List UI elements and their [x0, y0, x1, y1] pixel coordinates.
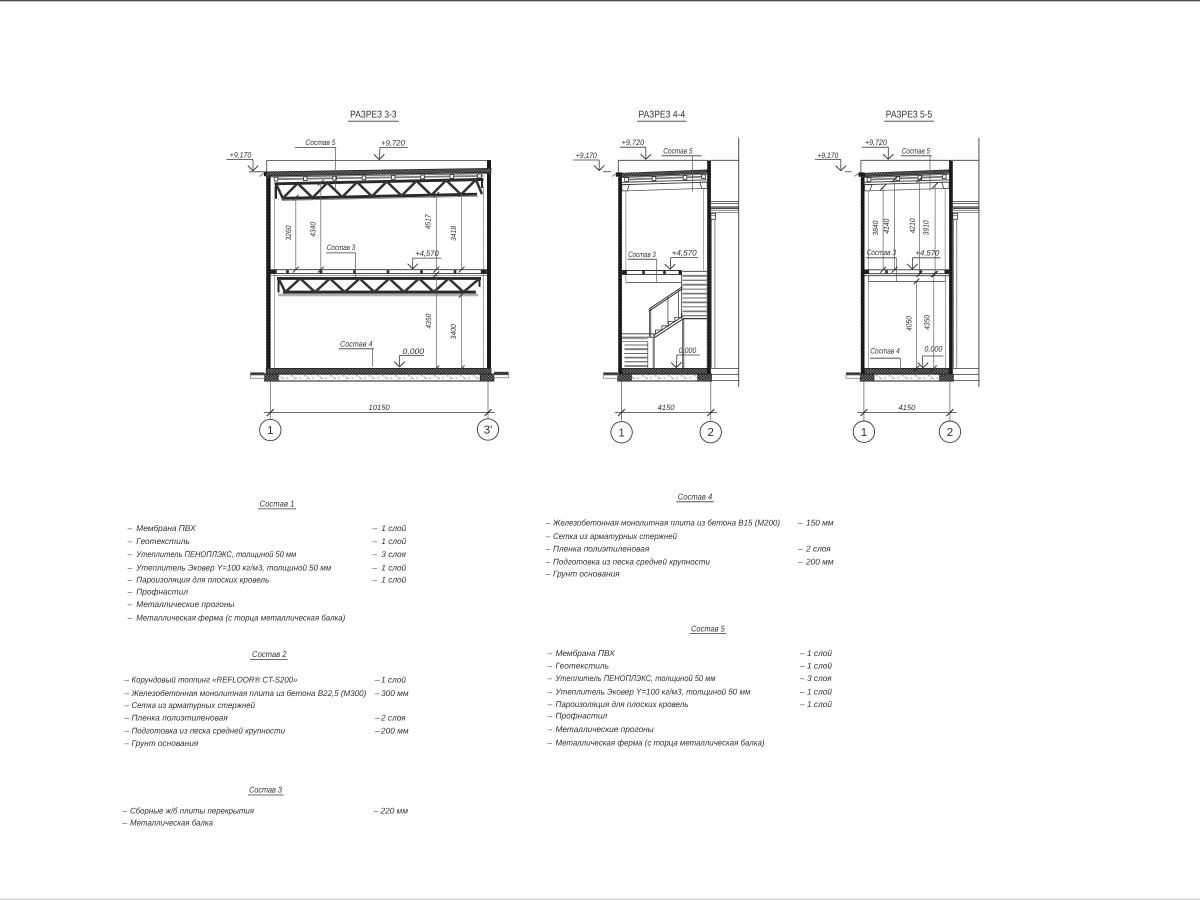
svg-text:2: 2	[707, 427, 713, 439]
svg-text:1 слой: 1 слой	[807, 686, 832, 696]
svg-text:0,000: 0,000	[403, 347, 425, 356]
svg-text:–: –	[799, 699, 805, 709]
svg-text:Железобетонная монолитная пли: Железобетонная монолитная плита из бетон…	[552, 518, 780, 528]
svg-text:–: –	[547, 686, 553, 696]
svg-text:Металлические прогоны: Металлические прогоны	[556, 724, 654, 734]
svg-text:Пароизоляция для плоских крове: Пароизоляция для плоских кровель	[556, 699, 689, 709]
svg-text:1: 1	[861, 427, 867, 439]
svg-text:Металлическая ферма (с торца м: Металлическая ферма (с торца металлическ…	[556, 737, 765, 747]
svg-text:–: –	[799, 661, 805, 671]
svg-text:Металлические прогоны: Металлические прогоны	[136, 599, 234, 609]
svg-text:–: –	[122, 805, 128, 815]
svg-text:–: –	[547, 699, 553, 709]
svg-text:300 мм: 300 мм	[381, 688, 409, 698]
svg-text:–: –	[547, 737, 553, 747]
svg-text:–: –	[124, 675, 130, 685]
svg-text:Утеплитель ПЕНОПЛЭКС, толщиной: Утеплитель ПЕНОПЛЭКС, толщиной 50 мм	[555, 673, 716, 683]
svg-text:Сетка из арматурных стержней: Сетка из арматурных стержней	[553, 531, 677, 541]
svg-text:–: –	[797, 543, 803, 553]
svg-text:Пароизоляция для плоских крове: Пароизоляция для плоских кровель	[136, 575, 269, 585]
svg-text:2 слоя: 2 слоя	[805, 543, 831, 553]
svg-text:Утеплитель Эковер Y=100 кг/м3,: Утеплитель Эковер Y=100 кг/м3, толщиной …	[555, 686, 751, 696]
svg-text:3': 3'	[484, 425, 493, 437]
svg-text:–: –	[797, 518, 803, 528]
svg-text:Утеплитель Эковер Y=100 кг/м3,: Утеплитель Эковер Y=100 кг/м3, толщиной …	[135, 562, 331, 572]
svg-text:–: –	[372, 575, 378, 585]
svg-text:1 слой: 1 слой	[381, 536, 406, 546]
svg-text:Подготовка из песка средней кр: Подготовка из песка средней крупности	[132, 726, 286, 736]
svg-text:–: –	[374, 688, 380, 698]
svg-text:Состав 3: Состав 3	[867, 248, 897, 257]
svg-text:2: 2	[947, 427, 953, 439]
svg-text:–: –	[127, 536, 133, 546]
svg-text:+9,720: +9,720	[622, 138, 645, 147]
svg-text:–: –	[374, 675, 380, 685]
svg-text:–: –	[127, 523, 133, 533]
svg-text:–: –	[545, 568, 551, 578]
svg-text:200 мм: 200 мм	[380, 726, 409, 736]
svg-text:1 слой: 1 слой	[381, 675, 406, 685]
svg-text:4517: 4517	[424, 214, 433, 230]
svg-text:10150: 10150	[369, 403, 391, 412]
svg-text:Состав 2: Состав 2	[252, 649, 287, 659]
svg-text:–: –	[127, 612, 133, 622]
svg-text:–: –	[122, 818, 128, 828]
svg-text:РАЗРЕЗ 3-3: РАЗРЕЗ 3-3	[350, 110, 397, 121]
svg-text:–: –	[127, 587, 133, 597]
svg-text:220 мм: 220 мм	[380, 805, 409, 815]
svg-text:–: –	[547, 673, 553, 683]
svg-text:Состав 5: Состав 5	[691, 623, 725, 633]
svg-text:Мембрана ПВХ: Мембрана ПВХ	[556, 648, 616, 658]
svg-text:Состав 4: Состав 4	[340, 339, 373, 348]
svg-text:–: –	[372, 536, 378, 546]
svg-text:3910: 3910	[922, 220, 931, 236]
svg-text:Грунт основания: Грунт основания	[553, 568, 620, 578]
svg-text:–: –	[545, 531, 551, 541]
svg-text:1: 1	[618, 427, 624, 439]
svg-text:Состав 4: Состав 4	[678, 492, 713, 502]
svg-text:–: –	[124, 688, 130, 698]
svg-text:Состав 4: Состав 4	[870, 347, 900, 356]
svg-text:–: –	[372, 523, 378, 533]
svg-text:4150: 4150	[658, 403, 676, 412]
svg-text:4350: 4350	[922, 314, 931, 330]
svg-text:1 слой: 1 слой	[807, 699, 832, 709]
svg-text:0,000: 0,000	[679, 346, 697, 355]
svg-text:4140: 4140	[882, 218, 891, 234]
svg-text:–: –	[374, 713, 380, 723]
svg-text:1 слой: 1 слой	[381, 575, 406, 585]
svg-text:–: –	[547, 724, 553, 734]
svg-text:2 слоя: 2 слоя	[380, 713, 406, 723]
svg-text:3400: 3400	[449, 324, 458, 340]
svg-text:Подготовка из песка средней кр: Подготовка из песка средней крупности	[553, 556, 710, 566]
svg-text:–: –	[373, 805, 379, 815]
svg-text:–: –	[545, 556, 551, 566]
svg-text:–: –	[372, 549, 378, 559]
svg-text:+9,170: +9,170	[576, 151, 598, 160]
svg-text:+9,170: +9,170	[818, 151, 839, 160]
svg-text:РАЗРЕЗ 5-5: РАЗРЕЗ 5-5	[886, 110, 933, 121]
svg-text:3840: 3840	[871, 220, 880, 236]
svg-text:Состав 3: Состав 3	[327, 243, 356, 252]
svg-text:Пленка полиэтиленовая: Пленка полиэтиленовая	[132, 713, 229, 723]
svg-text:Железобетонная монолитная пли: Железобетонная монолитная плита из бетон…	[131, 688, 367, 698]
svg-text:Грунт основания: Грунт основания	[132, 738, 199, 748]
svg-text:+9,720: +9,720	[865, 138, 887, 147]
svg-text:–: –	[124, 700, 130, 710]
svg-text:–: –	[124, 738, 130, 748]
svg-text:+4,570: +4,570	[415, 249, 439, 258]
svg-text:Состав 5: Состав 5	[305, 138, 336, 147]
svg-text:–: –	[797, 556, 803, 566]
svg-text:4350: 4350	[424, 313, 433, 329]
svg-text:4150: 4150	[898, 403, 916, 412]
svg-text:РАЗРЕЗ 4-4: РАЗРЕЗ 4-4	[639, 110, 686, 121]
svg-text:–: –	[547, 711, 553, 721]
svg-text:Сборные ж/б плиты перекрытия: Сборные ж/б плиты перекрытия	[130, 805, 255, 815]
svg-text:3260: 3260	[284, 225, 293, 241]
svg-text:–: –	[372, 562, 378, 572]
svg-text:–: –	[374, 726, 380, 736]
svg-text:Состав 5: Состав 5	[902, 147, 931, 156]
svg-text:Мембрана ПВХ: Мембрана ПВХ	[136, 523, 196, 533]
svg-text:–: –	[799, 648, 805, 658]
svg-text:–: –	[799, 673, 805, 683]
svg-text:+9,720: +9,720	[381, 138, 405, 147]
svg-text:–: –	[545, 543, 551, 553]
svg-text:–: –	[127, 549, 133, 559]
svg-text:1: 1	[267, 425, 273, 437]
svg-text:Профнастил: Профнастил	[556, 711, 608, 721]
svg-text:4340: 4340	[309, 221, 318, 237]
svg-text:–: –	[124, 726, 130, 736]
svg-text:4210: 4210	[908, 218, 917, 234]
svg-text:1 слой: 1 слой	[807, 648, 832, 658]
svg-text:1 слой: 1 слой	[381, 523, 406, 533]
svg-text:Состав 3: Состав 3	[628, 250, 656, 259]
svg-text:Состав 3: Состав 3	[249, 785, 282, 795]
svg-text:–: –	[799, 686, 805, 696]
svg-text:+4,570: +4,570	[672, 248, 698, 257]
svg-text:–: –	[545, 518, 551, 528]
svg-text:–: –	[547, 648, 553, 658]
svg-text:1 слой: 1 слой	[381, 562, 406, 572]
svg-text:Металлическая балка: Металлическая балка	[130, 818, 213, 828]
svg-text:3 слоя: 3 слоя	[381, 549, 406, 559]
svg-text:Состав 5: Состав 5	[663, 147, 693, 156]
svg-text:Геотекстиль: Геотекстиль	[136, 536, 189, 546]
svg-text:–: –	[127, 599, 133, 609]
svg-text:Профнастил: Профнастил	[136, 587, 188, 597]
svg-text:Утеплитель ПЕНОПЛЭКС, толщиной: Утеплитель ПЕНОПЛЭКС, толщиной 50 мм	[135, 549, 296, 559]
svg-text:150 мм: 150 мм	[806, 518, 834, 528]
svg-text:+9,170: +9,170	[230, 150, 252, 159]
svg-text:Сетка из арматурных стержней: Сетка из арматурных стержней	[132, 700, 256, 710]
svg-text:200 мм: 200 мм	[805, 556, 834, 566]
svg-text:3418: 3418	[449, 225, 458, 241]
svg-text:Пленка полиэтиленовая: Пленка полиэтиленовая	[553, 543, 650, 553]
svg-text:4050: 4050	[905, 315, 914, 331]
svg-text:Металлическая ферма (с торца м: Металлическая ферма (с торца металлическ…	[136, 612, 345, 622]
svg-text:1 слой: 1 слой	[807, 661, 832, 671]
svg-text:–: –	[124, 713, 130, 723]
svg-text:–: –	[547, 661, 553, 671]
svg-text:–: –	[127, 575, 133, 585]
svg-text:Корундовый топпинг «REFLOOR® C: Корундовый топпинг «REFLOOR® CT-S200»	[132, 675, 298, 685]
svg-text:–: –	[127, 562, 133, 572]
svg-text:Геотекстиль: Геотекстиль	[556, 661, 609, 671]
svg-text:3 слоя: 3 слоя	[807, 673, 832, 683]
svg-text:Состав 1: Состав 1	[260, 498, 295, 508]
